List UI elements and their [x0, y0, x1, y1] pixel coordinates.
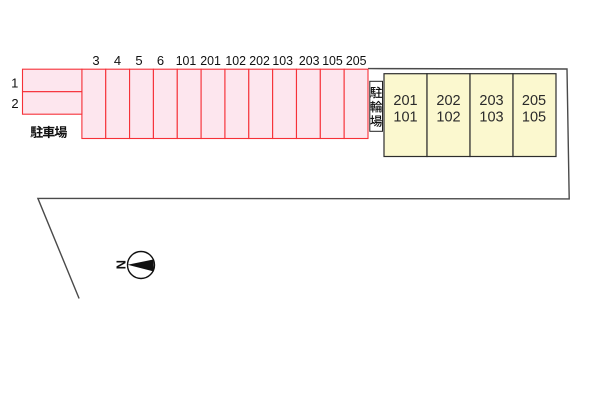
svg-text:6: 6	[157, 53, 164, 68]
svg-text:2: 2	[11, 96, 18, 111]
svg-text:1: 1	[11, 76, 18, 91]
svg-text:3: 3	[92, 53, 99, 68]
svg-text:201: 201	[393, 93, 417, 109]
svg-text:102: 102	[436, 110, 460, 126]
svg-text:205: 205	[522, 93, 546, 109]
svg-text:205: 205	[346, 53, 367, 68]
svg-text:103: 103	[479, 110, 503, 126]
svg-text:101: 101	[393, 110, 417, 126]
svg-text:5: 5	[135, 53, 142, 68]
svg-text:102: 102	[225, 53, 246, 68]
svg-text:105: 105	[322, 53, 343, 68]
svg-text:4: 4	[114, 53, 121, 68]
svg-text:N: N	[114, 260, 129, 269]
svg-text:201: 201	[200, 53, 221, 68]
svg-text:101: 101	[176, 53, 197, 68]
svg-text:203: 203	[479, 93, 503, 109]
svg-text:202: 202	[249, 53, 270, 68]
svg-text:103: 103	[272, 53, 293, 68]
svg-text:105: 105	[522, 110, 546, 126]
svg-text:202: 202	[436, 93, 460, 109]
svg-text:203: 203	[299, 53, 320, 68]
